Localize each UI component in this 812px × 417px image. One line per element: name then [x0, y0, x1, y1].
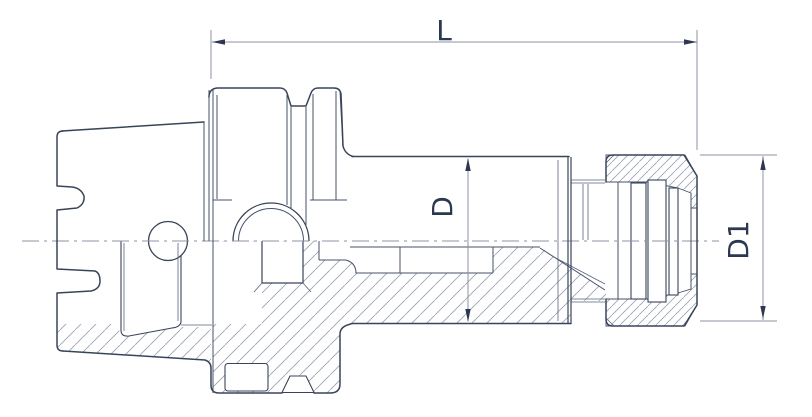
arrow-right-icon [684, 39, 697, 44]
toolholder-drawing: L D D1 [0, 0, 812, 417]
hsk-shank-taper-top [62, 122, 204, 131]
arrow-down-icon [760, 306, 765, 319]
dimension-label-d: D [426, 196, 459, 218]
arrow-up-icon [465, 158, 470, 171]
technical-drawing-canvas: L D D1 [0, 0, 812, 417]
keyway-slot [225, 364, 268, 392]
arrow-up-icon [760, 157, 765, 170]
dimension-label-l: L [436, 14, 452, 47]
flange-hole-section [262, 242, 303, 283]
arrow-left-icon [212, 39, 225, 44]
dimension-label-d1: D1 [722, 220, 755, 259]
dimension-diameter-d1: D1 [700, 155, 777, 321]
dimension-length: L [211, 14, 697, 150]
flange-bore-region [213, 242, 263, 325]
flange-v-groove-profile [209, 88, 353, 157]
